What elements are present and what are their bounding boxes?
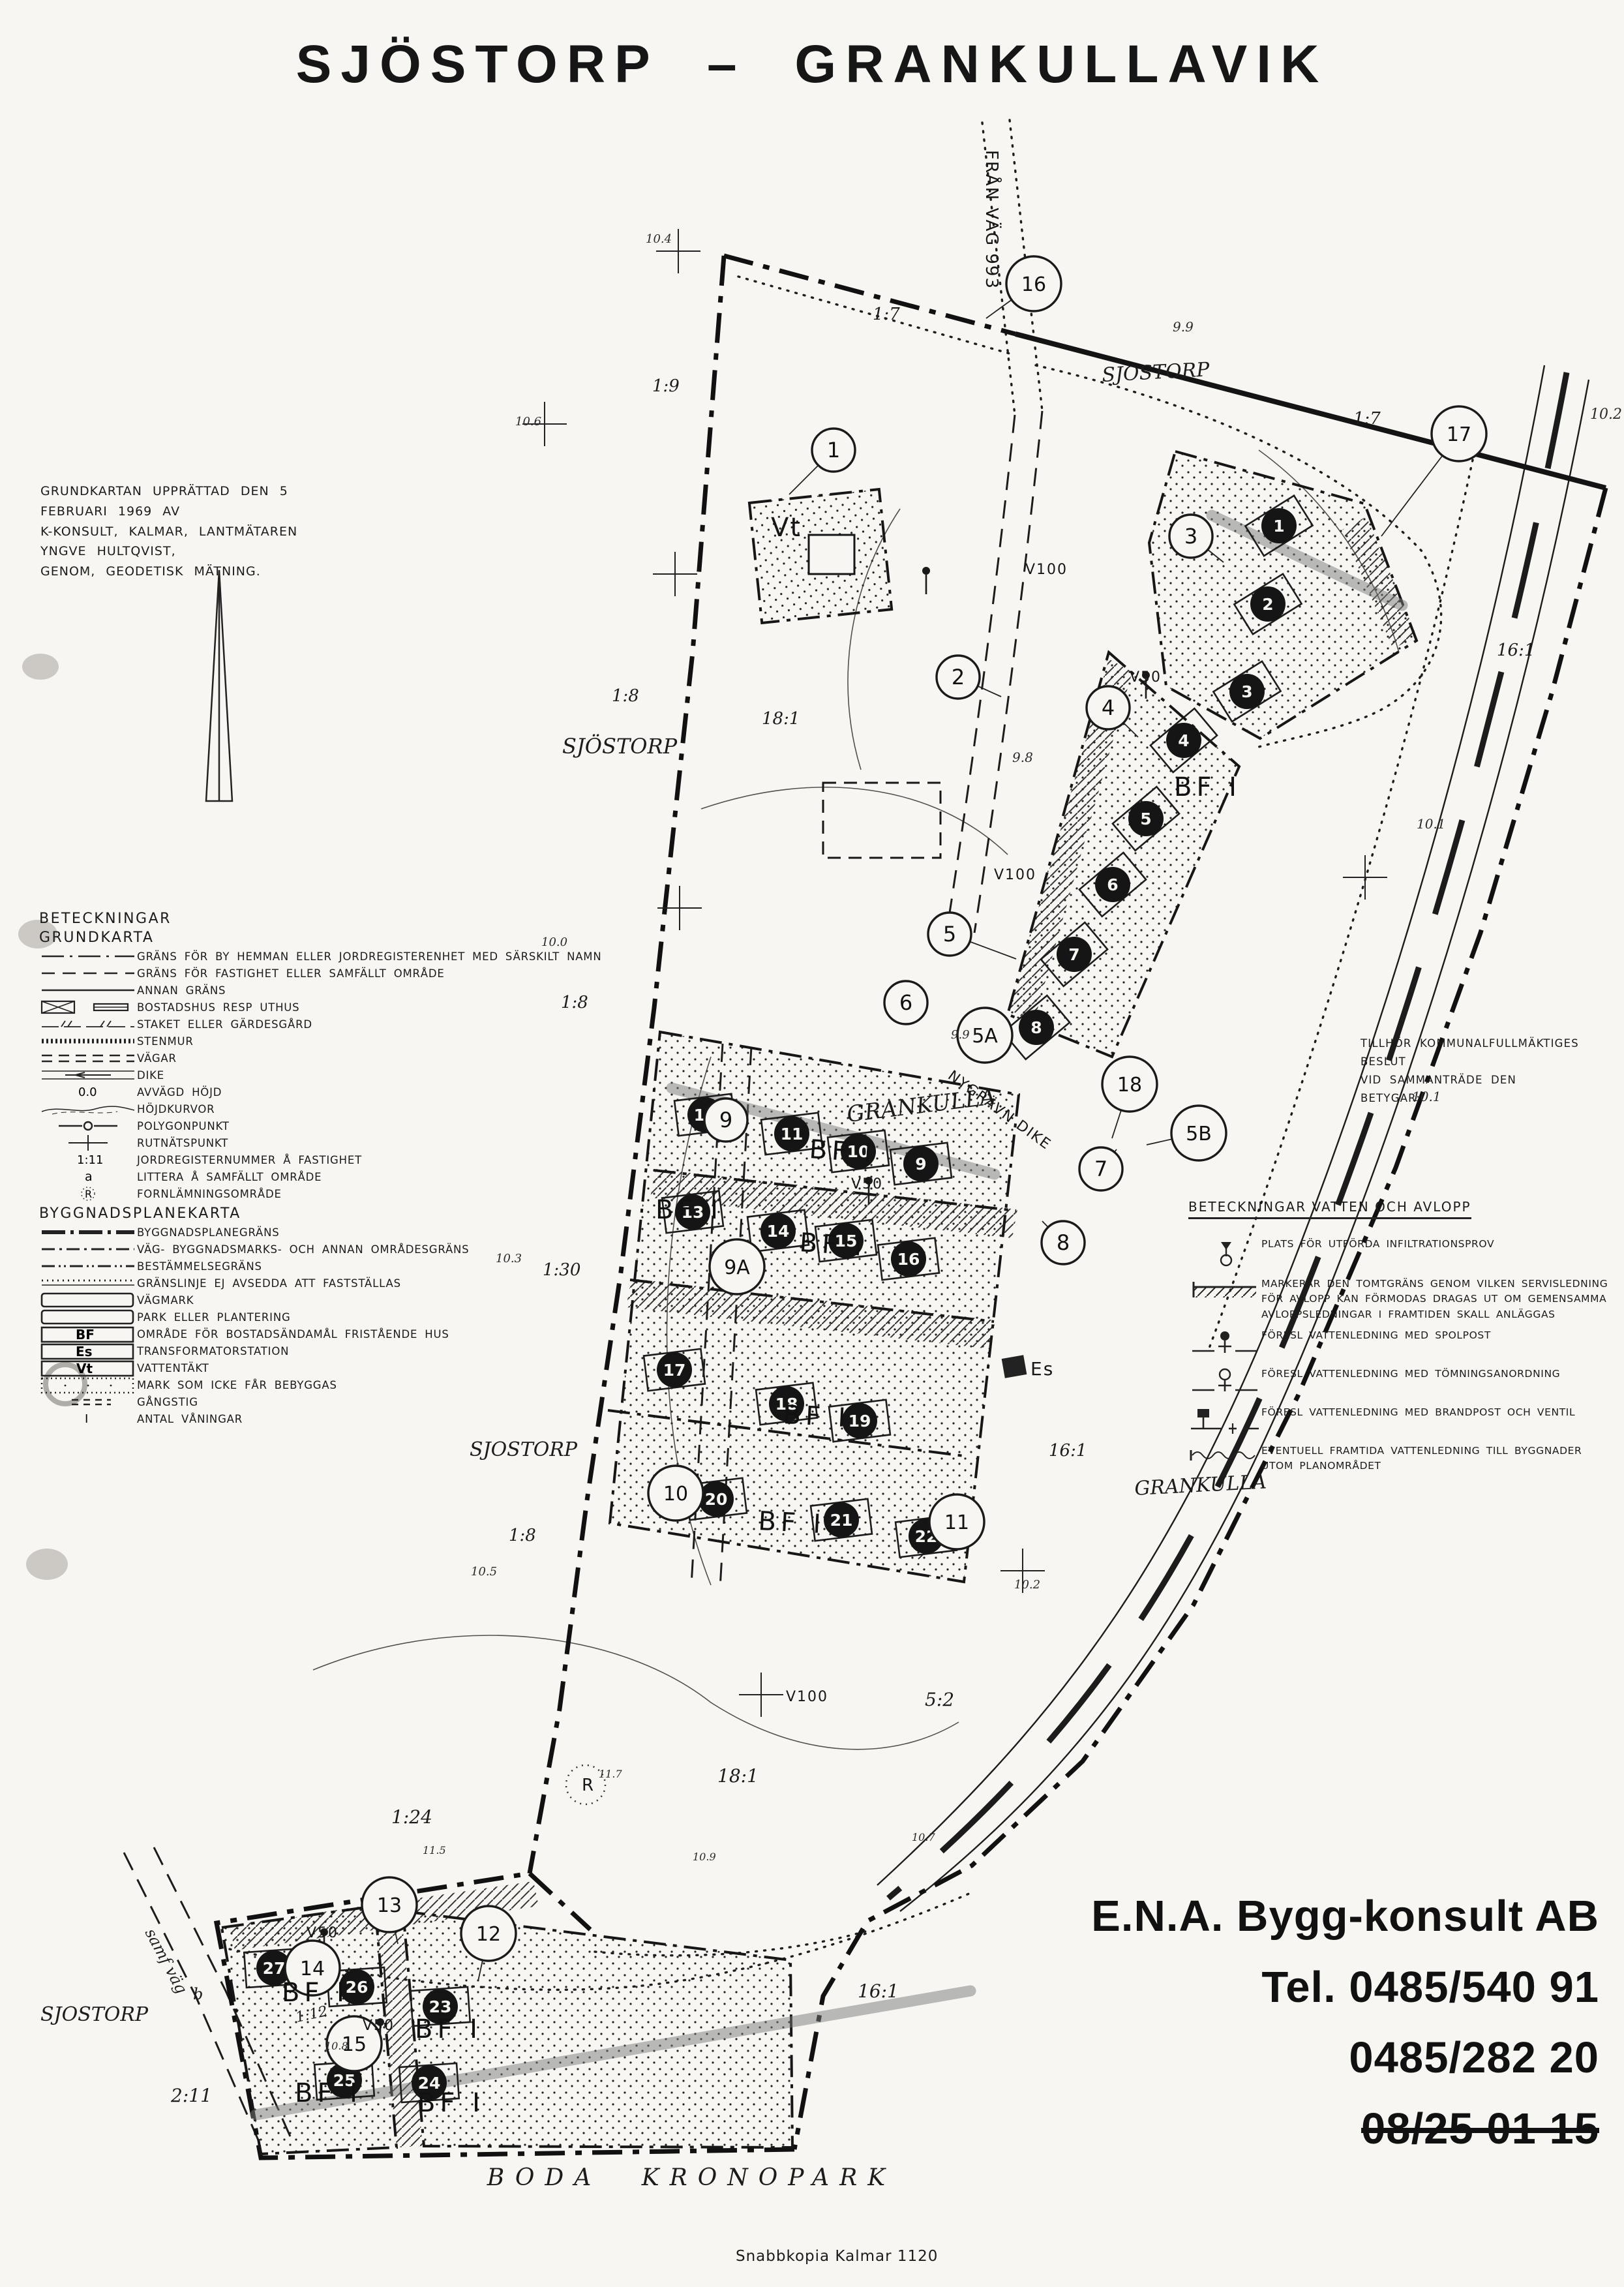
legend-item-label: LITTERA Å SAMFÄLLT OMRÅDE (137, 1171, 322, 1183)
consultant-stamp: E.N.A. Bygg-konsult AB Tel. 0485/540 91 … (1091, 1881, 1599, 2164)
legend-item-label: PLATS FÖR UTFÖRDA INFILTRATIONSPROV (1261, 1237, 1494, 1252)
legend-item-label: FÖRESL VATTENLEDNING MED SPOLPOST (1261, 1328, 1491, 1343)
legend-symbol-fram (1188, 1444, 1261, 1467)
legend-symbol-tomn (1188, 1367, 1261, 1399)
lot-number: 17 (663, 1361, 686, 1380)
legend-symbol-brand (1188, 1405, 1261, 1438)
svg-text:Es: Es (76, 1344, 93, 1359)
map-label: 10.5 (471, 1565, 497, 1579)
legend-symbol-forn: R (39, 1186, 137, 1202)
reference-circle-number: 2 (952, 665, 965, 689)
reference-circle-number: 11 (944, 1511, 969, 1534)
legend-symbol-gang (39, 1394, 137, 1410)
map-label: 1:9 (652, 376, 680, 396)
legend-item: 0.0AVVÄGD HÖJD (39, 1084, 600, 1100)
map-label: FRÅN VÄG 993 (982, 150, 1002, 290)
legend-symbol-jord: 1:11 (39, 1152, 137, 1168)
legend-symbol-bp1 (39, 1224, 137, 1240)
legend-heading: BETECKNINGAR (39, 911, 600, 927)
map-label: b (193, 1985, 203, 2003)
map-label: 1:8 (612, 686, 639, 706)
map-label: Vt (771, 513, 802, 543)
legend-heading: BETECKNINGAR VATTEN OCH AVLOPP (1188, 1199, 1471, 1219)
legend-item: PARK ELLER PLANTERING (39, 1309, 600, 1325)
legend-item: MARK SOM ICKE FÅR BEBYGGAS (39, 1377, 600, 1393)
lot-number: 11 (781, 1125, 804, 1143)
legend-symbol-bp4 (39, 1275, 137, 1291)
map-label: 1:8 (509, 1526, 536, 1545)
council-note-line: TILLHÖR KOMMUNALFULLMÄKTIGES BESLUT (1361, 1035, 1624, 1071)
lot-number: 27 (263, 1959, 286, 1978)
legend-item-label: VATTENTÄKT (137, 1362, 209, 1374)
water-post-icon (922, 567, 930, 575)
legend-item: RUTNÄTSPUNKT (39, 1135, 600, 1151)
legend-item: aLITTERA Å SAMFÄLLT OMRÅDE (39, 1169, 600, 1185)
zone-label-bf: BF I (782, 1400, 850, 1433)
legend-symbol-hojd: 0.0 (39, 1084, 137, 1100)
lot-number: 3 (1241, 682, 1252, 701)
well-building (809, 535, 854, 574)
map-label: V50 (307, 1925, 338, 1941)
fence-line (1015, 334, 1606, 488)
map-label: 10.4 (646, 232, 672, 246)
map-label: V100 (994, 867, 1036, 883)
reference-circle-number: 18 (1117, 1074, 1142, 1097)
lot-number: 8 (1030, 1018, 1042, 1037)
legend-item: RFORNLÄMNINGSOMRÅDE (39, 1186, 600, 1202)
legend-subheading: GRUNDKARTA (39, 930, 600, 946)
svg-text:R: R (85, 1188, 92, 1200)
legend-item-label: AVVÄGD HÖJD (137, 1086, 222, 1098)
legend-symbol-gr2 (39, 965, 137, 981)
map-label: SJOSTORP (40, 2003, 149, 2026)
legend-item-label: PARK ELLER PLANTERING (137, 1311, 291, 1324)
legend-symbol-box (39, 1309, 137, 1325)
legend-item-label: ANTAL VÅNINGAR (137, 1413, 243, 1425)
map-label: 10.6 (515, 415, 541, 429)
reference-circle-number: 1 (827, 438, 840, 462)
svg-text:0.0: 0.0 (78, 1085, 97, 1099)
map-label: V100 (1025, 562, 1068, 578)
legend-item-label: VÄG- BYGGNADSMARKS- OCH ANNAN OMRÅDESGRÄ… (137, 1243, 469, 1256)
svg-text:1:11: 1:11 (77, 1153, 103, 1167)
legend-symbol-bp3 (39, 1258, 137, 1274)
legend-item: GRÄNS FÖR FASTIGHET ELLER SAMFÄLLT OMRÅD… (39, 965, 600, 981)
legend-item: VÄG- BYGGNADSMARKS- OCH ANNAN OMRÅDESGRÄ… (39, 1241, 600, 1257)
legend-symbol-kurv (39, 1101, 137, 1117)
legend-symbol-gr1 (39, 948, 137, 964)
legend-symbol-tomt (1188, 1277, 1261, 1304)
legend-item: DIKE (39, 1067, 600, 1083)
legend-item-label: VÄGMARK (137, 1294, 194, 1307)
scanned-plan-sheet: SJÖSTORP – GRANKULLAVIK GRUNDKARTAN UPPR… (0, 0, 1624, 2287)
stamp-phone-struck: 08/25 01 15 (1091, 2094, 1599, 2165)
lot-number: 21 (830, 1511, 853, 1530)
legend-symbol-rut (39, 1135, 137, 1151)
map-label: 5:2 (925, 1689, 954, 1710)
transformer-station (1002, 1355, 1027, 1378)
legend-item: PLATS FÖR UTFÖRDA INFILTRATIONSPROV (1188, 1237, 1611, 1271)
stamp-phone: 0485/282 20 (1091, 2023, 1599, 2094)
legend-item: VÄGMARK (39, 1292, 600, 1308)
lot-number: 6 (1107, 875, 1118, 894)
legend-symbol-staket (39, 1016, 137, 1032)
legend-symbol-poly (39, 1118, 137, 1134)
reference-circle-number: 16 (1021, 273, 1046, 296)
reference-circle-number: 17 (1447, 423, 1471, 446)
map-label: 1:7 (873, 305, 900, 324)
legend-symbol-spol (1188, 1328, 1261, 1361)
lot-number: 4 (1178, 731, 1189, 750)
legend-item: 1:11JORDREGISTERNUMMER Å FASTIGHET (39, 1152, 600, 1168)
north-arrow (206, 570, 232, 801)
legend-item-label: MARKERAR DEN TOMTGRÄNS GENOM VILKEN SERV… (1261, 1277, 1611, 1322)
legend-symbol-dike (39, 1067, 137, 1083)
reference-circle-number: 4 (1102, 695, 1115, 720)
legend-symbol-esbox: Es (39, 1343, 137, 1359)
zone-label-bf: BF I (757, 1506, 826, 1539)
legend-item-label: GRÄNSLINJE EJ AVSEDDA ATT FASTSTÄLLAS (137, 1277, 401, 1290)
map-label: V50 (851, 1176, 883, 1192)
legend-symbol-vagar (39, 1050, 137, 1066)
legend-item-label: DIKE (137, 1069, 164, 1082)
stamp-company: E.N.A. Bygg-konsult AB (1091, 1881, 1599, 1952)
legend-item: FÖRESL VATTENLEDNING MED BRANDPOST OCH V… (1188, 1405, 1611, 1438)
legend-symbol-markbox (39, 1377, 137, 1393)
legend-symbol-bfbox: BF (39, 1326, 137, 1342)
legend-item: ANNAN GRÄNS (39, 982, 600, 998)
legend-item-label: JORDREGISTERNUMMER Å FASTIGHET (137, 1154, 362, 1166)
lot-number: 7 (1068, 945, 1079, 964)
zone-label-bf: BF I (415, 2014, 482, 2044)
council-note-line: BETYGAR: (1361, 1089, 1624, 1108)
legend-item: EVENTUELL FRAMTIDA VATTENLEDNING TILL BY… (1188, 1444, 1611, 1474)
legend-symbol-gr3 (39, 982, 137, 998)
reference-circle-number: 14 (300, 1958, 325, 1980)
zone-label-bf: BF I (655, 1195, 723, 1225)
reference-circle-number: 8 (1057, 1230, 1070, 1255)
reference-circle-number: 5 (943, 922, 956, 947)
map-label: 16:1 (1497, 641, 1535, 660)
legend-symbol-bp2 (39, 1241, 137, 1257)
legend-item-label: FÖRESL VATTENLEDNING MED BRANDPOST OCH V… (1261, 1405, 1575, 1420)
reference-circle-number: 13 (377, 1894, 402, 1917)
legend-item: HÖJDKURVOR (39, 1101, 600, 1117)
map-label: 18:1 (717, 1765, 759, 1787)
legend-item-label: STENMUR (137, 1035, 194, 1048)
legend-item-label: FORNLÄMNINGSOMRÅDE (137, 1188, 282, 1200)
map-label: 10.7 (912, 1831, 935, 1843)
map-label: 11.7 (599, 1768, 622, 1780)
legend-item-label: RUTNÄTSPUNKT (137, 1137, 228, 1149)
reference-circle-number: 12 (476, 1923, 501, 1946)
map-label: V100 (786, 1689, 828, 1705)
legend-symbol-van: I (39, 1411, 137, 1427)
legend-item: EsTRANSFORMATORSTATION (39, 1343, 600, 1359)
legend-item-label: GRÄNS FÖR FASTIGHET ELLER SAMFÄLLT OMRÅD… (137, 967, 445, 980)
map-label: 11.5 (423, 1844, 446, 1856)
reference-circle-number: 9A (724, 1256, 750, 1279)
legend-item: VÄGAR (39, 1050, 600, 1066)
legend-item-label: GRÄNS FÖR BY HEMMAN ELLER JORDREGISTEREN… (137, 950, 601, 963)
legend-symbol-litt: a (39, 1169, 137, 1185)
legend-symbol-infil (1188, 1237, 1261, 1271)
map-label: SJÖSTORP (562, 734, 678, 759)
legend-item: BOSTADSHUS RESP UTHUS (39, 999, 600, 1015)
lot-number: 5 (1140, 810, 1151, 828)
legend-item: STAKET ELLER GÄRDESGÅRD (39, 1016, 600, 1032)
reference-circle-number: 3 (1184, 524, 1197, 549)
lot-number: 16 (897, 1250, 920, 1269)
legend-item: GÅNGSTIG (39, 1394, 600, 1410)
map-label: SJOSTORP (470, 1438, 578, 1461)
legend-grundkarta: BETECKNINGAR GRUNDKARTA GRÄNS FÖR BY HEM… (39, 911, 600, 1203)
legend-item: GRÄNS FÖR BY HEMMAN ELLER JORDREGISTEREN… (39, 948, 600, 964)
legend-heading: BYGGNADSPLANEKARTA (39, 1205, 600, 1222)
legend-item-label: FÖRESL VATTENLEDNING MED TÖMNINGSANORDNI… (1261, 1367, 1560, 1382)
legend-item-label: GÅNGSTIG (137, 1396, 198, 1408)
reference-circle-number: 5A (972, 1025, 998, 1048)
map-label: V50 (1130, 669, 1162, 686)
legend-item-label: BOSTADSHUS RESP UTHUS (137, 1001, 299, 1014)
zone-label-bf: BF I (282, 1978, 349, 2008)
legend-item-label: BYGGNADSPLANEGRÄNS (137, 1226, 280, 1239)
lot-number: 23 (429, 1997, 452, 2016)
stamp-phone: Tel. 0485/540 91 (1091, 1952, 1599, 2023)
legend-symbol-box (39, 1292, 137, 1308)
map-label: 9.9 (1173, 319, 1194, 335)
area-label: BODA KRONOPARK (365, 2164, 1017, 2191)
legend-item-label: HÖJDKURVOR (137, 1103, 215, 1115)
legend-item-label: TRANSFORMATORSTATION (137, 1345, 289, 1357)
legend-item: IANTAL VÅNINGAR (39, 1411, 600, 1427)
zone-label-bf: BF I (808, 1134, 877, 1169)
reference-circle-number: 6 (899, 990, 912, 1015)
map-label: 18:1 (762, 709, 800, 729)
map-label: 9.8 (1012, 750, 1033, 765)
map-label: 10.2 (1590, 406, 1622, 423)
print-shop-note: Snabbkopia Kalmar 1120 (736, 2248, 938, 2265)
map-label: 1:7 (1353, 409, 1381, 429)
svg-text:I: I (85, 1412, 88, 1426)
reference-circle-number: 7 (1094, 1157, 1107, 1181)
legend-item: FÖRESL VATTENLEDNING MED SPOLPOST (1188, 1328, 1611, 1361)
lot-number: 14 (767, 1222, 790, 1241)
map-label: R (582, 1776, 595, 1795)
legend-item: MARKERAR DEN TOMTGRÄNS GENOM VILKEN SERV… (1188, 1277, 1611, 1322)
zone-label-bf: BF I (417, 2088, 485, 2118)
legend-byggnadsplanekarta: BYGGNADSPLANEKARTA BYGGNADSPLANEGRÄNSVÄG… (39, 1205, 600, 1428)
legend-item-label: STAKET ELLER GÄRDESGÅRD (137, 1018, 312, 1031)
legend-item: BESTÄMMELSEGRÄNS (39, 1258, 600, 1274)
legend-item: VtVATTENTÄKT (39, 1360, 600, 1376)
map-label: 2:11 (170, 2085, 212, 2106)
map-label: V50 (363, 2018, 395, 2034)
legend-item: GRÄNSLINJE EJ AVSEDDA ATT FASTSTÄLLAS (39, 1275, 600, 1291)
map-label: 10.9 (693, 1851, 716, 1863)
zone-label-bf: BF I (798, 1228, 867, 1262)
legend-vatten-avlopp: BETECKNINGAR VATTEN OCH AVLOPP PLATS FÖR… (1188, 1199, 1611, 1479)
map-label: 16:1 (858, 1980, 899, 2002)
lot-number: 2 (1262, 595, 1273, 614)
council-note: TILLHÖR KOMMUNALFULLMÄKTIGES BESLUT VID … (1361, 1035, 1624, 1108)
reference-circle-number: 10 (663, 1483, 688, 1506)
legend-item-label: POLYGONPUNKT (137, 1120, 230, 1132)
legend-item-label: ANNAN GRÄNS (137, 984, 226, 997)
legend-item: FÖRESL VATTENLEDNING MED TÖMNINGSANORDNI… (1188, 1367, 1611, 1399)
reference-circle-number: 9 (719, 1108, 732, 1132)
map-label: 10.2 (1014, 1578, 1040, 1592)
legend-symbol-vtbox: Vt (39, 1360, 137, 1376)
zone-label-bf: BF I (295, 2078, 362, 2108)
legend-item: STENMUR (39, 1033, 600, 1049)
legend-item: BFOMRÅDE FÖR BOSTADSÄNDAMÅL FRISTÅENDE H… (39, 1326, 600, 1342)
map-label: 9.9 (951, 1028, 970, 1042)
council-note-line: VID SAMMANTRÄDE DEN (1361, 1071, 1624, 1089)
legend-item: POLYGONPUNKT (39, 1118, 600, 1134)
reference-circle-number: 5B (1186, 1123, 1212, 1145)
legend-item-label: VÄGAR (137, 1052, 177, 1065)
legend-item-label: OMRÅDE FÖR BOSTADSÄNDAMÅL FRISTÅENDE HUS (137, 1328, 449, 1340)
zone-label-bf: BF I (1174, 772, 1241, 802)
legend-item-label: BESTÄMMELSEGRÄNS (137, 1260, 262, 1273)
svg-text:a: a (85, 1170, 93, 1184)
map-label: 10.1 (1417, 816, 1446, 832)
map-label: Es (1030, 1358, 1054, 1380)
lot-number: 1 (1273, 517, 1284, 536)
map-label: 1:24 (391, 1806, 432, 1828)
map-label: 16:1 (1049, 1441, 1087, 1461)
legend-symbol-hus (39, 999, 137, 1015)
map-label: 10.8 (325, 2040, 348, 2052)
svg-text:Vt: Vt (76, 1361, 93, 1376)
legend-item-label: MARK SOM ICKE FÅR BEBYGGAS (137, 1379, 337, 1391)
lot-number: 20 (705, 1490, 728, 1509)
legend-symbol-stenmur (39, 1033, 137, 1049)
svg-text:BF: BF (76, 1327, 95, 1342)
lot-number: 9 (915, 1155, 926, 1174)
lot-number: 19 (849, 1412, 871, 1431)
legend-item-label: EVENTUELL FRAMTIDA VATTENLEDNING TILL BY… (1261, 1444, 1611, 1474)
legend-item: BYGGNADSPLANEGRÄNS (39, 1224, 600, 1240)
